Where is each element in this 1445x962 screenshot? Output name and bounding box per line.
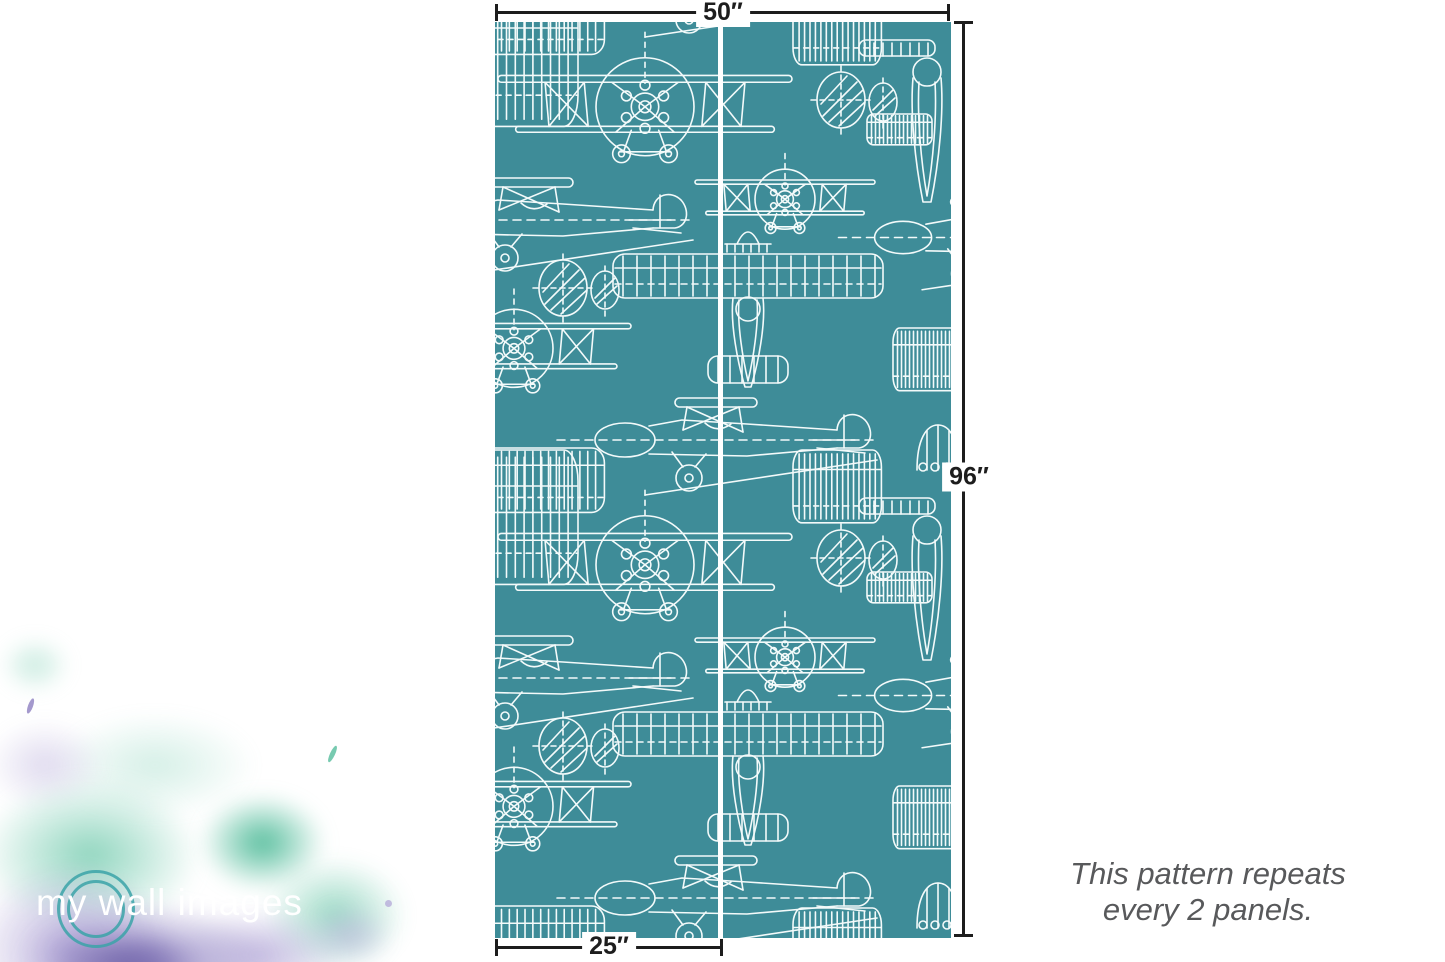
watercolor-blob [290,890,410,962]
logo-circle-icon [67,880,125,938]
watercolor-blob [175,775,350,910]
watercolor-blob [0,830,210,962]
watercolor-blob [0,625,85,705]
dimension-tick [495,939,498,956]
watercolor-blob [25,920,225,962]
logo-circle-icon [57,870,135,948]
dimension-tick [954,21,973,24]
watercolor-blob [0,880,310,962]
watercolor-blob [235,835,435,962]
repeat-caption-line2: every 2 panels. [1028,892,1388,928]
paint-speck [385,900,392,907]
watercolor-blob [140,890,380,962]
paint-speck [25,698,35,715]
repeat-caption-line1: This pattern repeats [1028,856,1388,892]
repeat-caption: This pattern repeats every 2 panels. [1028,856,1388,929]
panel-width-dimension-label: 25″ [582,932,636,961]
watercolor-blob [0,700,130,830]
dimension-tick [954,934,973,937]
panel-seam-line [718,22,723,938]
watercolor-blob [0,750,240,960]
brand-logo-text: my wall images [36,882,303,924]
watercolor-blob [10,690,300,840]
product-image: my wall images [0,0,1445,962]
watercolor-splash: my wall images [0,560,460,962]
dimension-tick [720,939,723,956]
wallpaper-panel [495,22,951,938]
airplane-blueprint-pattern [495,22,951,938]
dimension-tick [947,4,950,21]
paint-speck [326,745,338,763]
dimension-tick [495,4,498,21]
width-dimension-label: 50″ [696,0,750,27]
height-dimension-label: 96″ [942,463,996,492]
